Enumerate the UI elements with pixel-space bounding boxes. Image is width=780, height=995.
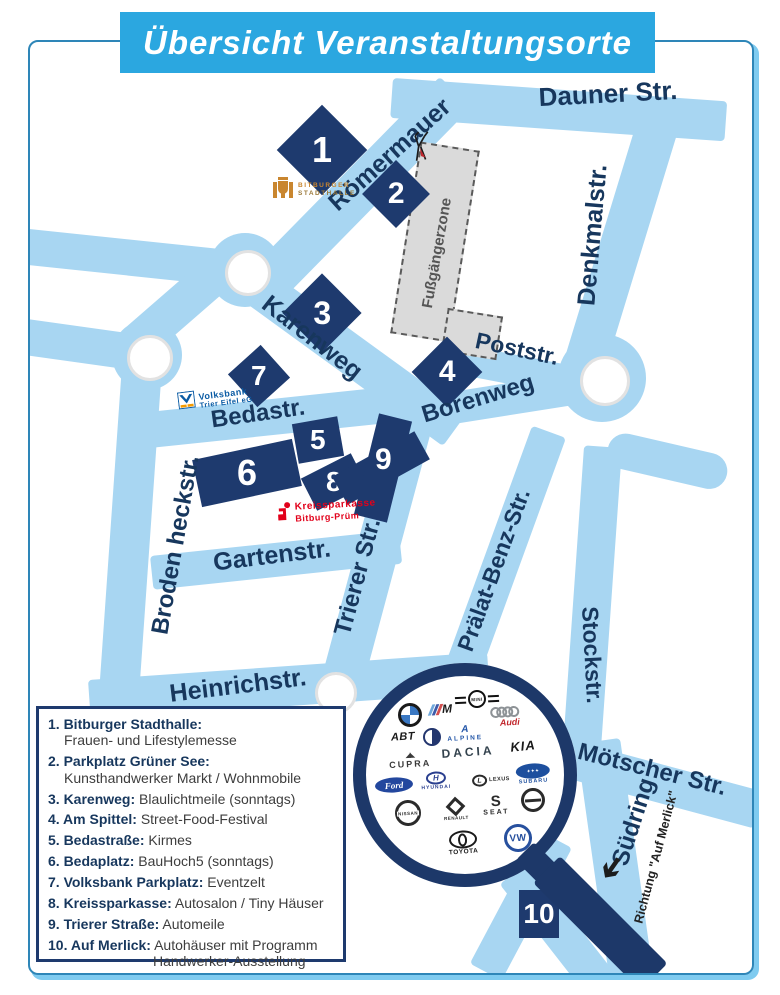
brand-logo-seat: S SEAT [482,793,509,816]
roundabout-3 [580,356,630,406]
mini-right-wing-icon [488,694,499,702]
brand-logo-dacia: DACIA [441,743,495,761]
brand-logo-kia: KIA [510,737,537,755]
nissan-circle-icon: NISSAN [394,799,421,826]
legend-item-10: 10. Auf Merlick: Autohäuser mit Programm… [48,937,334,970]
legend-box: 1. Bitburger Stadthalle:Frauen- und Life… [36,706,346,962]
title-banner: Übersicht Veranstaltungsorte [120,12,655,73]
legend-item-6: 6. Bedaplatz: BauHoch5 (sonntags) [48,853,334,869]
street-label-brodenheckstr: Broden heckstr. [146,453,205,637]
toyota-emblem-icon [448,830,477,850]
stadthalle-logo: BITBURGER STADTHALLE [272,175,356,204]
renault-diamond-icon [446,797,466,817]
mini-left-wing-icon [455,696,466,704]
brand-logo-bmw-m: M [430,701,453,716]
marker-6: 6 [192,439,302,507]
seat-s-icon: S [490,794,501,810]
legend-item-5: 5. Bedastraße: Kirmes [48,832,334,848]
alpine-a-icon: A [461,724,469,735]
street-label-stockstr: Stockstr. [576,606,608,704]
legend-item-8: 8. Kreissparkasse: Autosalon / Tiny Häus… [48,895,334,911]
brand-logo-lexus: L LEXUS [472,773,510,787]
lexus-l-icon: L [472,774,488,787]
brand-logo-hyundai: H HYUNDAI [421,771,452,792]
alfa-romeo-emblem-icon [423,728,441,746]
brand-logo-cupra: ◢◣ CUPRA [389,750,432,770]
marker-5: 5 [292,416,344,463]
legend-item-9: 9. Trierer Straße: Automeile [48,916,334,932]
volksbank-icon [177,391,197,415]
opel-blitz-icon [520,787,546,813]
street-brodenheckstr [99,349,163,703]
legend-item-1: 1. Bitburger Stadthalle:Frauen- und Life… [48,716,334,749]
brand-logo-bmw [398,703,422,727]
brand-logo-nissan: NISSAN [394,799,421,826]
brand-logo-opel [520,787,546,813]
legend-item-3: 3. Karenweg: Blaulichtmeile (sonntags) [48,791,334,807]
brand-logo-audi: Audi [490,706,520,728]
hyundai-h-icon: H [426,771,447,785]
brand-logo-alfa-romeo [423,728,441,746]
legend-item-2: 2. Parkplatz Grüner See:Kunsthandwerker … [48,753,334,786]
sculpture-icon [406,128,437,168]
map-area: Fußgängerzone 1 2 3 4 5 6 7 8 9 10 Daune… [0,0,780,995]
event-map-poster: Fußgängerzone 1 2 3 4 5 6 7 8 9 10 Daune… [0,0,780,995]
bmw-roundel-icon [398,703,422,727]
roundabout-1 [225,250,271,296]
brand-logo-abt: ABT [391,730,416,743]
brand-logo-subaru: ✦✦✦ SUBARU [515,762,550,785]
page-title: Übersicht Veranstaltungsorte [143,24,632,62]
brand-logo-ford: Ford [375,776,414,794]
legend-item-7: 7. Volksbank Parkplatz: Eventzelt [48,874,334,890]
stadthalle-logo-line2: STADTHALLE [298,190,356,198]
ford-oval-icon: Ford [375,776,414,794]
brand-logo-alpine: A ALPINE [447,723,484,743]
stadthalle-logo-line1: BITBURGER [298,182,356,190]
street-east-branch [604,430,731,493]
brand-logo-renault: RENAULT [443,799,469,821]
legend-item-4: 4. Am Spittel: Street-Food-Festival [48,811,334,827]
stadthalle-gate-icon [272,175,294,204]
roundabout-2 [127,335,173,381]
sparkasse-icon [277,502,291,526]
brand-logo-toyota: TOYOTA [447,830,478,857]
